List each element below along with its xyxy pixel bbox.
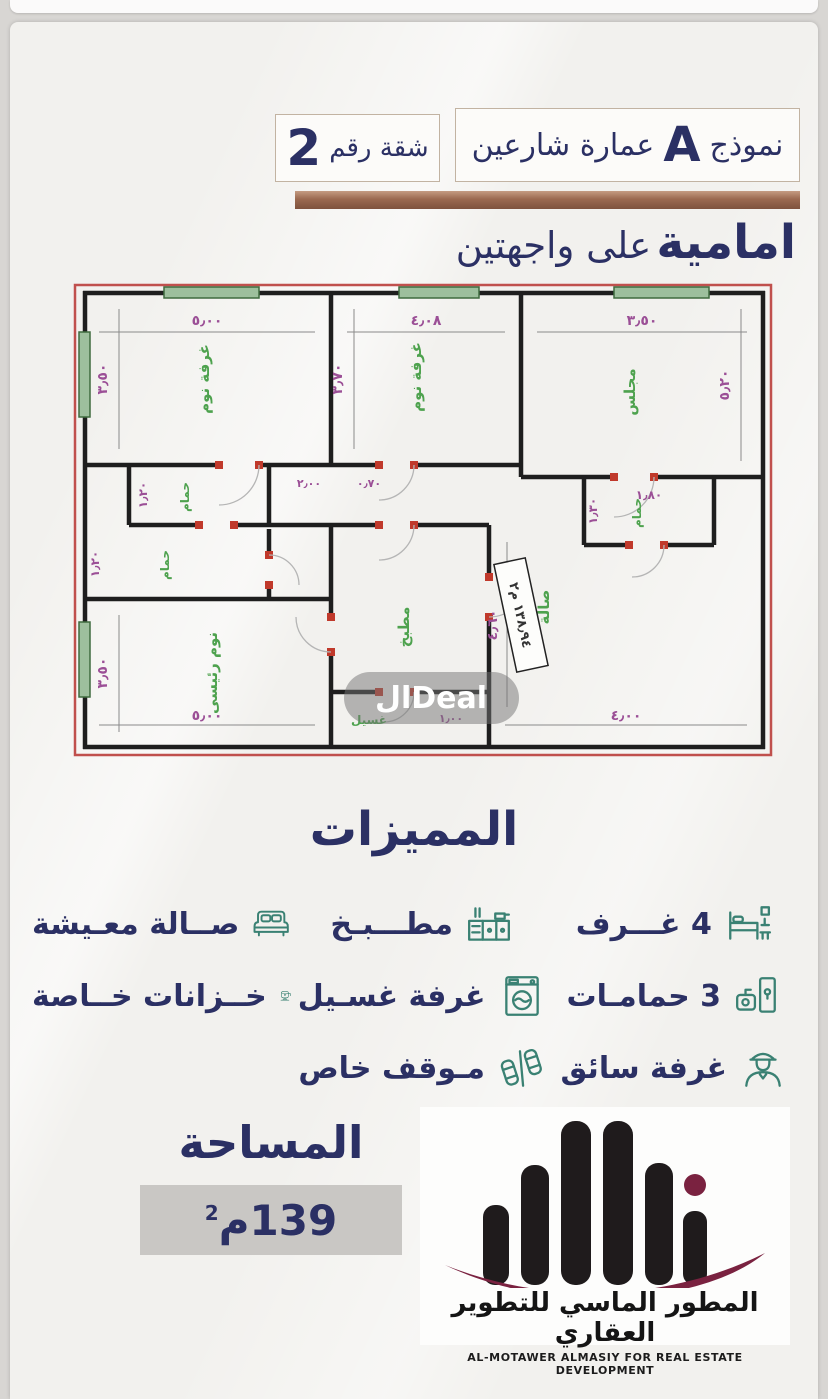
flyer-card: نموذج A عمارة شارعين شقة رقم 2 امامية عل… <box>10 22 818 1399</box>
sofa-icon <box>251 900 291 948</box>
feature-label: غرفة غسـيل <box>298 979 486 1014</box>
feature-label: 4 غـــرف <box>576 907 712 942</box>
room-label: غرفة نوم <box>407 342 425 412</box>
dimension-label: ٤٫٠٠ <box>611 708 642 724</box>
logo-dot <box>684 1174 706 1196</box>
dimension-label: ٤٫٠٨ <box>411 313 442 329</box>
plan-windows <box>79 287 709 697</box>
divider-bar <box>295 191 800 209</box>
dimension-label: ١٫٢٠ <box>136 482 150 508</box>
dimension-label: ٣٫٥٠ <box>95 364 111 395</box>
dimension-label: ٣٫٥٠ <box>95 658 111 689</box>
feature-label: خــزانات خــاصة <box>32 979 267 1014</box>
kitchen-icon <box>465 900 513 948</box>
parking-icon <box>497 1044 545 1092</box>
feature-item-tanks: خــزانات خــاصة <box>32 972 292 1020</box>
feature-label: غرفة سائق <box>561 1051 728 1086</box>
dimension-label: ٥٫٠٠ <box>192 313 223 329</box>
apartment-number: 2 <box>286 123 321 173</box>
model-letter: A <box>663 121 700 169</box>
feature-item-rooms: 4 غـــرف <box>552 900 796 948</box>
previous-card-edge <box>10 0 818 13</box>
room-label: حمام <box>158 550 173 580</box>
orientation-subtitle: امامية على واجهتين <box>310 216 796 270</box>
plan-room-labels: غرفة نوم غرفة نوم مجلس حمام حمام حمام نو… <box>158 342 645 727</box>
feature-item-driver-room: غرفة سائق <box>552 1044 796 1092</box>
area-value: 139م2 <box>205 1196 337 1245</box>
feature-item-parking: مـوقف خاص <box>292 1044 552 1092</box>
plan-door-jambs <box>195 461 668 696</box>
driver-icon <box>739 1044 787 1092</box>
room-label: نوم رئيسى <box>203 632 221 714</box>
watermark-text: الDeal <box>375 681 487 716</box>
dimension-label: ٥٫٢٠ <box>717 370 733 401</box>
apartment-box: شقة رقم 2 <box>275 114 440 182</box>
feature-label: مـوقف خاص <box>298 1051 485 1086</box>
feature-label: مطـــبـخ <box>330 907 453 942</box>
feature-item-kitchen: مطـــبـخ <box>292 900 552 948</box>
feature-item-living-room: صــالة معـيشة <box>32 900 292 948</box>
dimension-label: ٠٫٧٠ <box>357 477 381 490</box>
room-label: حمام <box>178 482 193 512</box>
feature-item-bathrooms: 3 حمامـات <box>552 972 796 1020</box>
feature-label: صــالة معـيشة <box>32 907 239 942</box>
company-logo: المطور الماسي للتطوير العقاري AL-MOTAWER… <box>420 1107 790 1345</box>
building-label: عمارة شارعين <box>472 128 655 163</box>
feature-label: 3 حمامـات <box>566 979 721 1014</box>
area-box: 139م2 <box>140 1185 402 1255</box>
bathroom-icon <box>733 972 781 1020</box>
washer-icon <box>498 972 546 1020</box>
features-grid: 4 غـــرف مطـــبـخ صــالة معـيشة 3 حمامـا… <box>32 900 796 1092</box>
subtitle-bold: امامية <box>656 215 796 270</box>
room-label: مجلس <box>621 368 639 415</box>
features-title: المميزات <box>10 802 818 857</box>
dimension-label: ٤٫٦٠ <box>485 610 501 641</box>
model-label: نموذج <box>709 128 783 163</box>
room-label: حمام <box>630 498 645 528</box>
logo-name-english: AL-MOTAWER ALMASIY FOR REAL ESTATE DEVEL… <box>420 1351 790 1377</box>
dimension-label: ٣٫٧٠ <box>330 364 346 395</box>
dimension-label: ٣٫٥٠ <box>627 313 658 329</box>
watermark: الDeal <box>344 672 519 724</box>
room-label: مطبخ <box>395 607 413 648</box>
tank-icon <box>279 972 292 1020</box>
subtitle-rest: على واجهتين <box>456 224 652 267</box>
dimension-label: ١٫٢٠ <box>88 551 102 577</box>
dimension-label: ١٫٣٠ <box>586 498 600 524</box>
apartment-label: شقة رقم <box>329 133 428 163</box>
logo-name-arabic: المطور الماسي للتطوير العقاري <box>420 1288 790 1348</box>
floor-plan: ٥٫٠٠ ٤٫٠٨ ٣٫٥٠ ٣٫٥٠ ٣٫٧٠ ٥٫٢٠ ١٫٢٠ ١٫٢٠ … <box>69 277 779 767</box>
logo-skyline <box>425 1113 785 1288</box>
room-label: غرفة نوم <box>195 344 213 414</box>
feature-item-laundry: غرفة غسـيل <box>292 972 552 1020</box>
model-box: نموذج A عمارة شارعين <box>455 108 800 182</box>
dimension-label: ٢٫٠٠ <box>297 477 321 490</box>
area-title: المساحة <box>140 1116 402 1169</box>
bed-icon <box>724 900 772 948</box>
